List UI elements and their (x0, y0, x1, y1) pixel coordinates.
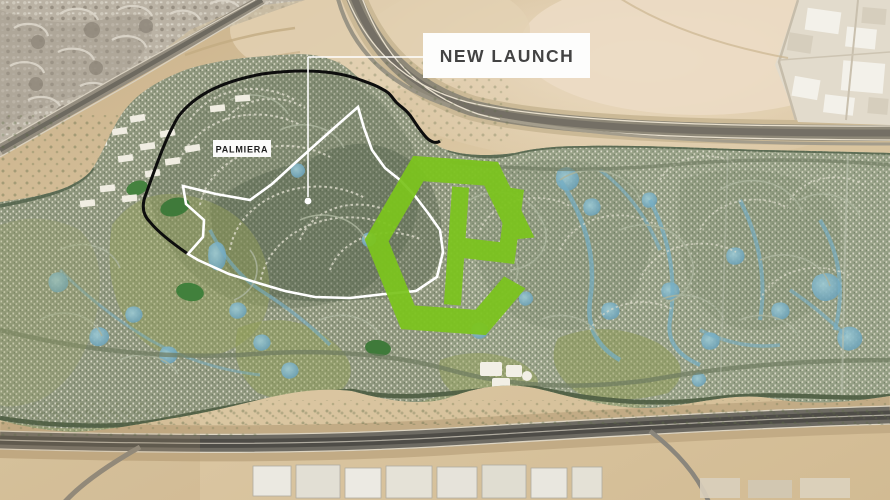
svg-text:PALMIERA: PALMIERA (216, 145, 269, 155)
svg-text:NEW LAUNCH: NEW LAUNCH (440, 46, 575, 66)
